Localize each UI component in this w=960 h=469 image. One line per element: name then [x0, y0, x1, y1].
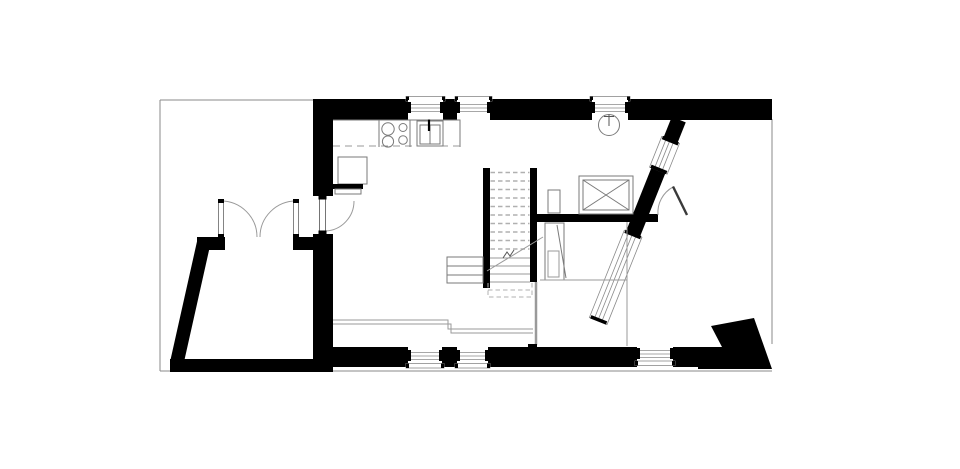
shed-door-arc-right — [260, 201, 296, 237]
wall-bottom-2 — [488, 347, 637, 367]
stair-stringer-right — [530, 168, 537, 282]
boiler-circle — [599, 115, 620, 136]
shed-walls — [170, 237, 333, 372]
rail-post — [528, 344, 537, 348]
floor-plan-drawing — [0, 0, 960, 469]
window-top-1 — [406, 97, 445, 121]
shed-door-arc-left — [221, 201, 257, 237]
wall-left-upper — [313, 99, 333, 196]
kitchen-counter — [333, 120, 460, 147]
window-top-2 — [455, 97, 492, 121]
stove — [379, 120, 410, 147]
shed-double-doors — [218, 199, 299, 238]
entry-door-leaf — [320, 199, 326, 231]
site-boundary — [160, 100, 772, 371]
duct — [548, 190, 560, 213]
window-bottom-1 — [406, 347, 444, 368]
wall-bottom-1 — [333, 347, 408, 367]
window-bottom-3 — [635, 347, 675, 366]
kitchen — [333, 120, 460, 195]
shed-wall-slanted — [170, 237, 212, 362]
floor-plan-canvas — [0, 0, 960, 469]
entry-door-swing-arc — [326, 201, 354, 231]
stair-lower-outline — [488, 283, 532, 297]
radiator-shelf — [333, 184, 363, 194]
angled-window-upper — [649, 136, 679, 175]
wall-corner-southeast — [698, 318, 772, 369]
wall-top — [313, 99, 772, 120]
shed-door-leaf-left — [219, 201, 224, 237]
shed-wall-bottom — [170, 359, 333, 372]
stair-break-symbol — [503, 250, 514, 258]
fixtures-right — [540, 115, 633, 347]
interior-door-leaf — [673, 187, 687, 216]
stair-side-steps — [447, 257, 483, 283]
skylight-x-box — [579, 176, 633, 214]
wardrobe — [545, 223, 566, 280]
stair-treads-solid — [490, 258, 530, 282]
window-bottom-2 — [455, 347, 490, 368]
entry-door — [319, 195, 355, 236]
interior-door — [658, 187, 687, 216]
interior-door-swing-arc — [658, 187, 673, 215]
shed-door-leaf-right — [294, 201, 299, 237]
shed-wall-top-right — [293, 237, 333, 250]
sink — [417, 120, 443, 147]
floor-step-lines — [333, 320, 533, 333]
staircase — [447, 173, 543, 349]
refrigerator — [338, 157, 367, 184]
angled-window-long — [589, 229, 642, 325]
wall-left-lower — [313, 234, 333, 371]
main-house-walls — [313, 99, 772, 371]
stair-treads-dashed — [491, 173, 530, 250]
